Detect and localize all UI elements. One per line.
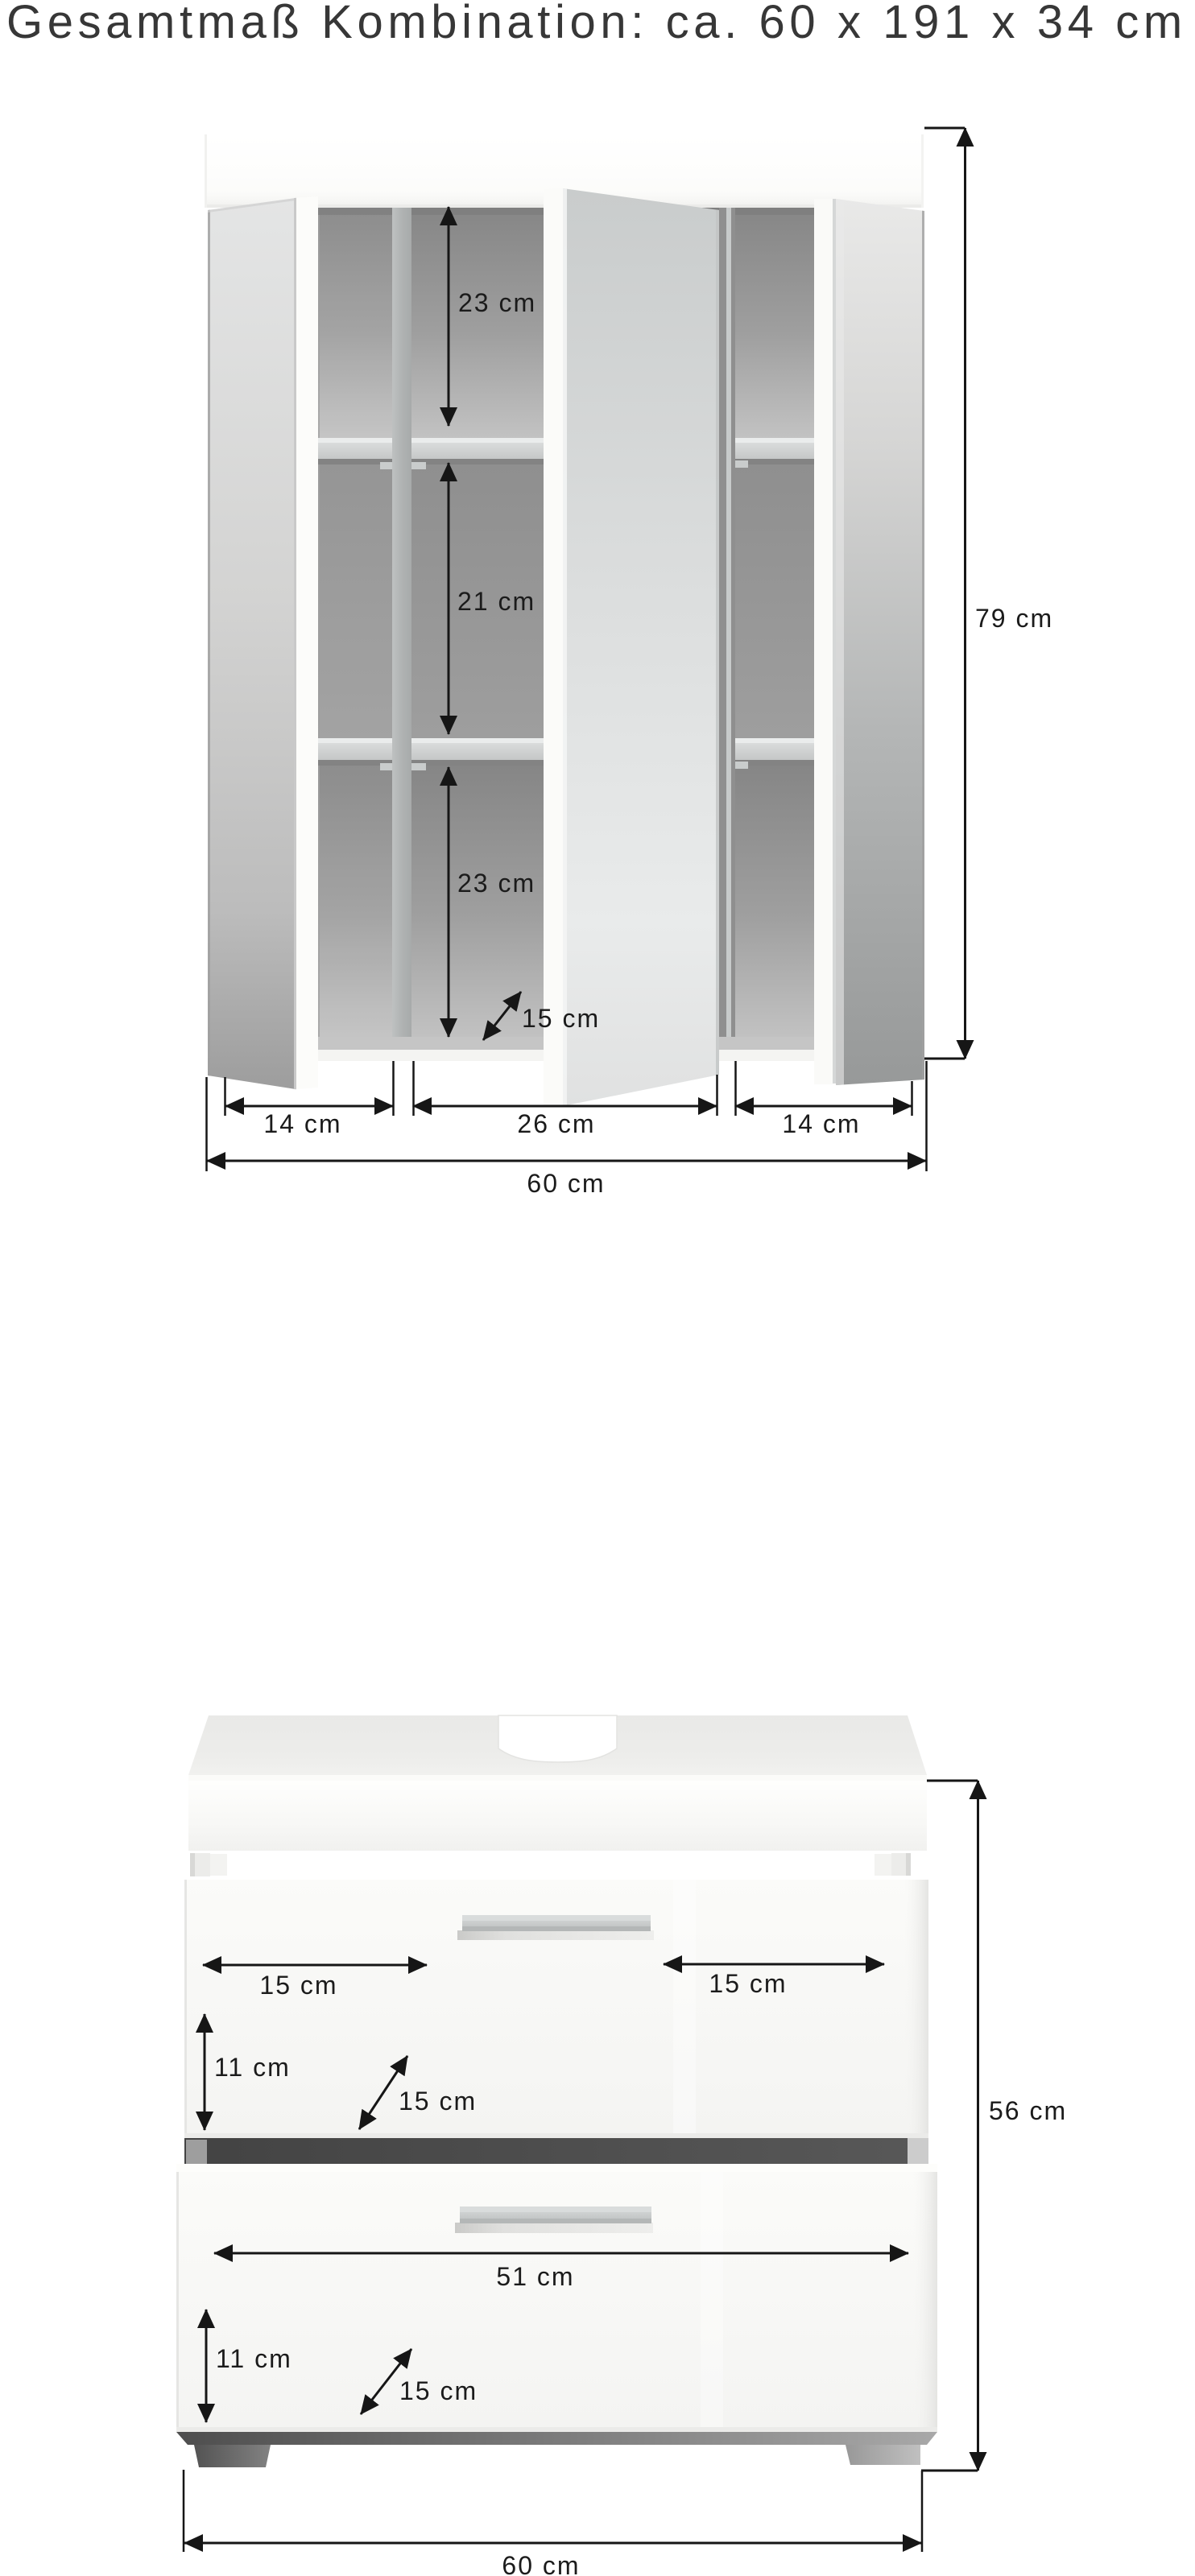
svg-text:11 cm: 11 cm [214,2053,291,2082]
svg-text:Gesamtmaß Kombination: ca. 60: Gesamtmaß Kombination: ca. 60 x 191 x 34… [6,0,1187,48]
svg-text:23 cm: 23 cm [458,288,536,317]
svg-text:15 cm: 15 cm [522,1004,600,1033]
svg-text:15 cm: 15 cm [259,1971,337,2000]
svg-text:79 cm: 79 cm [975,604,1053,633]
svg-text:14 cm: 14 cm [263,1109,341,1138]
svg-text:11 cm: 11 cm [216,2344,292,2373]
svg-text:26 cm: 26 cm [517,1109,595,1138]
svg-text:15 cm: 15 cm [709,1969,787,1998]
svg-text:15 cm: 15 cm [399,2376,478,2405]
svg-text:51 cm: 51 cm [496,2262,574,2291]
svg-text:21 cm: 21 cm [457,587,535,616]
svg-text:60 cm: 60 cm [527,1169,605,1198]
svg-text:15 cm: 15 cm [399,2087,477,2116]
svg-text:23 cm: 23 cm [457,869,535,898]
svg-text:14 cm: 14 cm [782,1109,860,1138]
svg-text:60 cm: 60 cm [502,2551,580,2576]
svg-text:56 cm: 56 cm [989,2096,1067,2125]
